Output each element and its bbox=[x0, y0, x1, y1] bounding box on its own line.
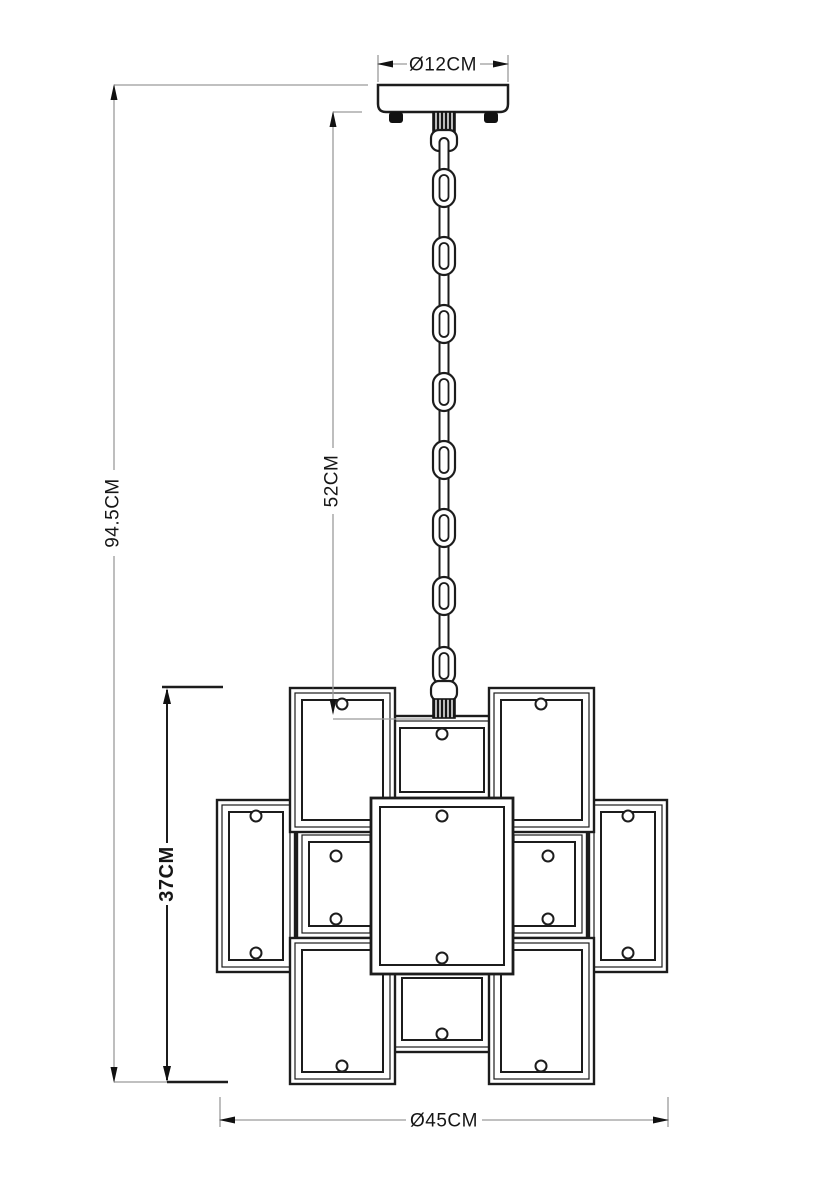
body-diameter-label: Ø45CM bbox=[410, 1111, 478, 1132]
body-height-label: 37CM bbox=[156, 846, 178, 901]
canopy-screw-left bbox=[389, 112, 403, 123]
panel-outer-right bbox=[589, 800, 667, 972]
body-threaded-stem bbox=[433, 699, 455, 718]
diagram-canvas: Ø12CM 94.5CM 52CM 37CM bbox=[0, 0, 840, 1200]
panel-middle-right bbox=[509, 830, 587, 938]
panel-center-front bbox=[371, 798, 513, 974]
total-height-label: 94.5CM bbox=[103, 478, 124, 548]
canopy-plate bbox=[378, 85, 508, 112]
technical-drawing: Ø12CM 94.5CM 52CM 37CM bbox=[0, 0, 840, 1200]
panel-outer-left bbox=[217, 800, 295, 972]
canopy-screw-right bbox=[484, 112, 498, 123]
chain-length-label: 52CM bbox=[322, 455, 343, 508]
panel-bottom-center bbox=[390, 966, 494, 1052]
panel-top-center bbox=[388, 716, 496, 804]
chain-bottom-loop bbox=[431, 681, 457, 701]
panel-middle-left bbox=[297, 830, 375, 938]
canopy-diameter-label: Ø12CM bbox=[409, 55, 477, 76]
